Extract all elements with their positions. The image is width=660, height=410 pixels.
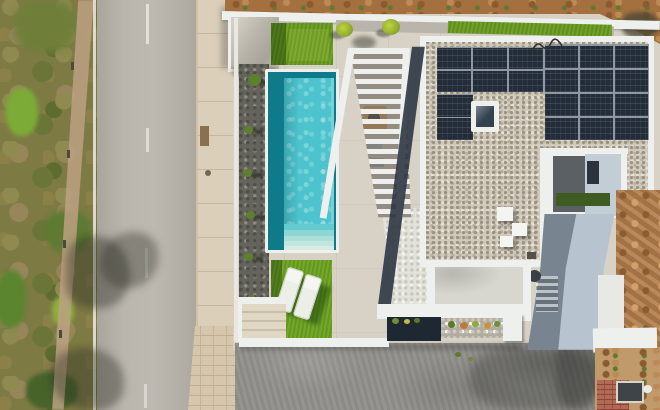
bright-bush bbox=[0, 270, 26, 328]
skylight-glass bbox=[476, 106, 494, 127]
plant bbox=[472, 321, 479, 327]
plant bbox=[484, 322, 491, 329]
plant bbox=[494, 321, 500, 327]
plant bbox=[404, 319, 410, 324]
dining-table bbox=[363, 106, 387, 130]
grass-strip-top bbox=[448, 21, 612, 37]
plant bbox=[392, 318, 399, 324]
weed bbox=[455, 352, 461, 357]
vegetation-clump bbox=[14, 0, 76, 52]
roof-hatch bbox=[527, 252, 536, 259]
plant bbox=[460, 322, 468, 329]
asphalt-road bbox=[97, 0, 197, 410]
road-dash bbox=[146, 4, 149, 44]
shrub-shadow bbox=[252, 257, 264, 261]
white-object bbox=[643, 385, 652, 393]
chair bbox=[370, 158, 384, 167]
small-tree bbox=[336, 22, 353, 37]
grass-shade bbox=[271, 23, 286, 65]
fence-post bbox=[71, 62, 74, 70]
grass-highlight bbox=[289, 29, 329, 61]
manhole-dot bbox=[205, 170, 211, 176]
shrub bbox=[244, 253, 253, 261]
shrub-shadow bbox=[252, 130, 264, 134]
shrub bbox=[243, 169, 252, 177]
solar-array-a bbox=[437, 47, 545, 92]
shrub-shadow bbox=[251, 173, 263, 177]
white-pillar bbox=[503, 314, 522, 341]
roof-vent bbox=[512, 223, 527, 236]
fence-post bbox=[63, 240, 66, 248]
shrub bbox=[248, 74, 261, 86]
road-dash bbox=[146, 128, 149, 152]
roof-vent bbox=[497, 207, 513, 221]
table-object bbox=[368, 112, 380, 124]
solar-array-c bbox=[437, 94, 473, 140]
small-tree bbox=[382, 19, 400, 35]
roof-cable bbox=[530, 36, 564, 56]
shrub bbox=[246, 211, 255, 219]
solar-array-b bbox=[545, 44, 649, 140]
plant bbox=[414, 318, 420, 323]
roof-vent bbox=[500, 236, 513, 247]
bright-bush bbox=[6, 88, 38, 136]
fence-post bbox=[59, 330, 62, 338]
garden-steps bbox=[242, 304, 286, 340]
shrub bbox=[244, 126, 253, 134]
fence-post bbox=[67, 150, 70, 158]
pool-steps bbox=[284, 224, 334, 250]
utility-box bbox=[200, 126, 209, 146]
chair bbox=[366, 140, 382, 150]
road-dash bbox=[144, 384, 147, 408]
drain-cover bbox=[616, 381, 644, 403]
courtyard-grass bbox=[556, 193, 610, 206]
aerial-photo bbox=[0, 0, 660, 410]
courtyard-window bbox=[587, 161, 599, 184]
garden-wall-south bbox=[239, 338, 389, 347]
ramp-steps bbox=[536, 276, 558, 312]
plant bbox=[448, 321, 455, 328]
pergola-frame-top bbox=[350, 48, 408, 54]
paver-strip bbox=[188, 326, 238, 410]
boundary-wall-west bbox=[234, 18, 238, 342]
weed bbox=[468, 357, 473, 361]
east-wall bbox=[598, 275, 624, 331]
